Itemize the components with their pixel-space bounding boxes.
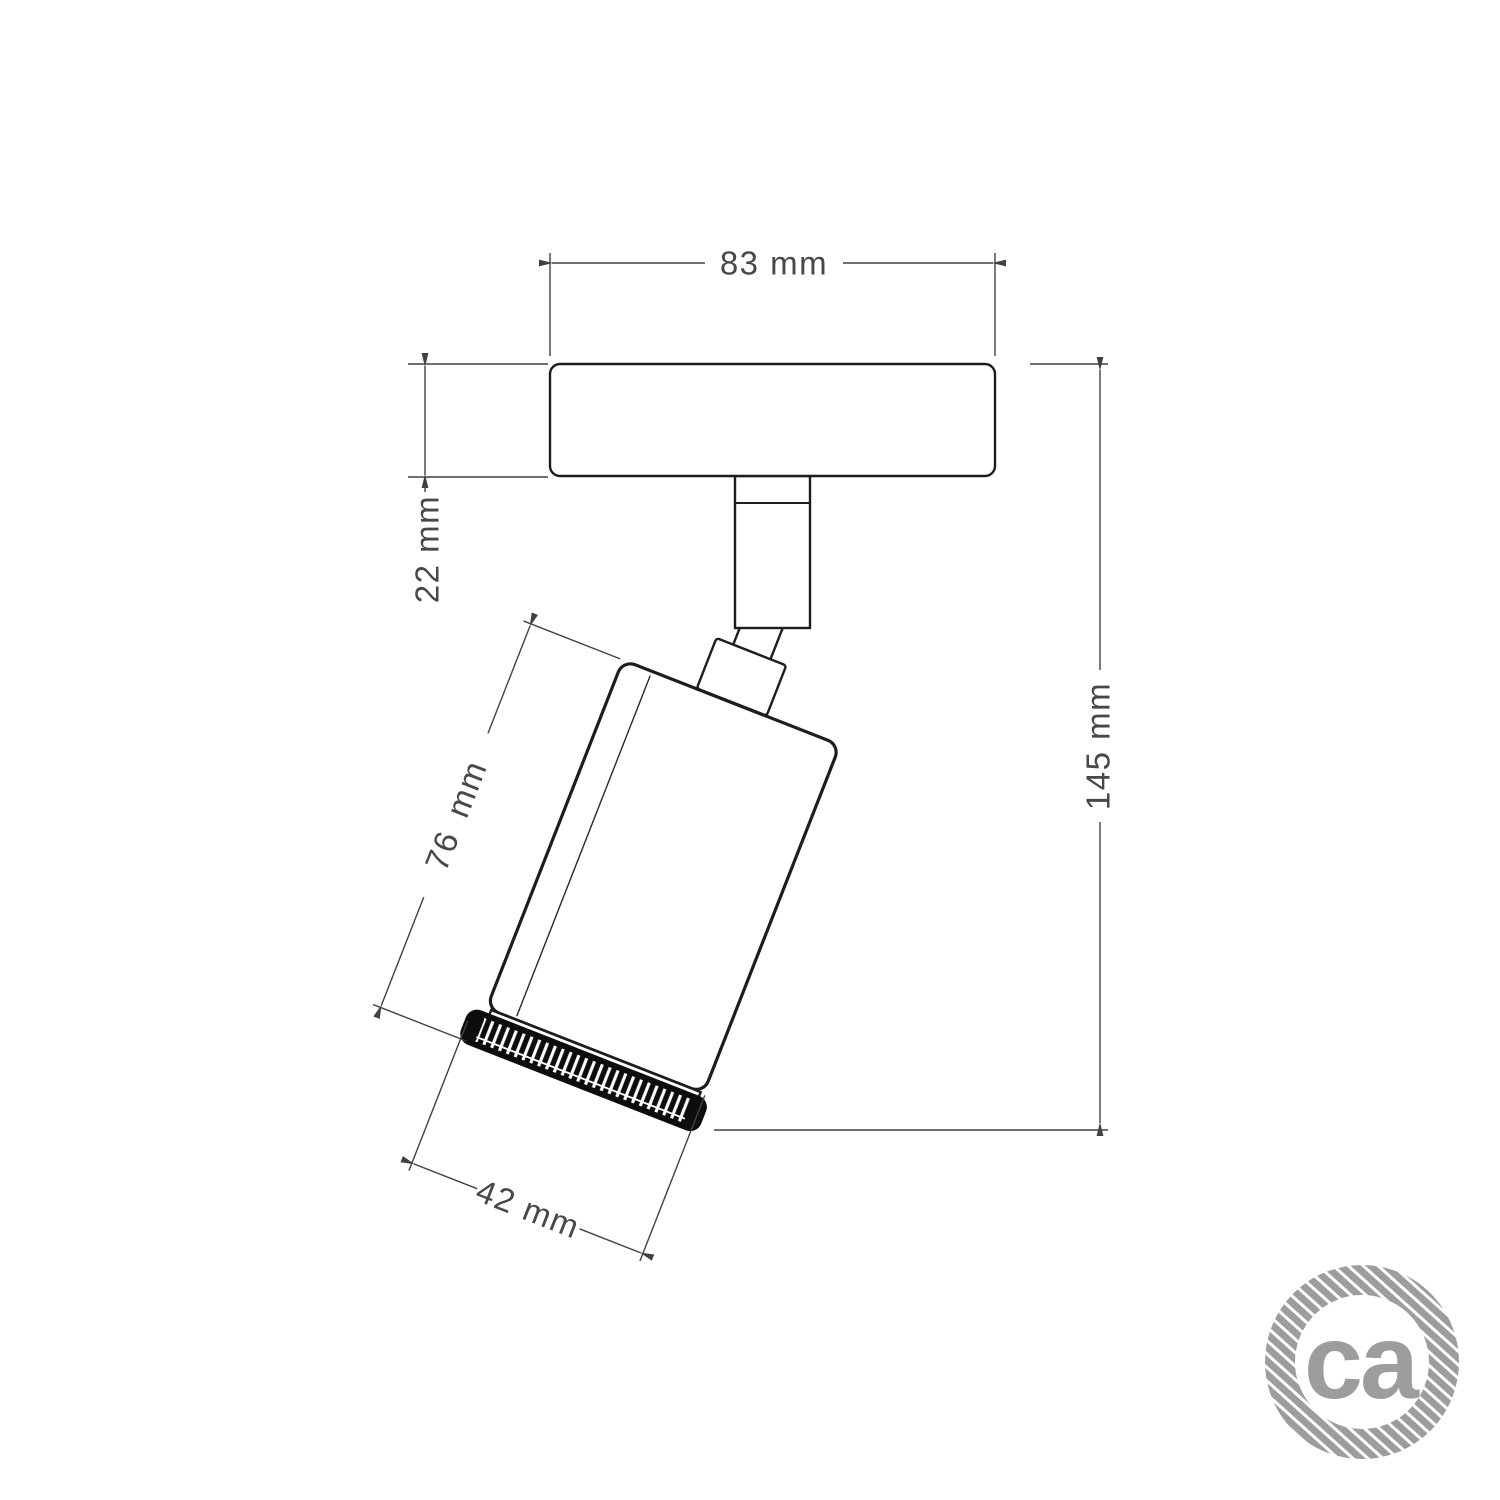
extension-lines-22 bbox=[408, 364, 548, 477]
dimension-label-83: 83 mm bbox=[720, 245, 828, 282]
ceiling-plate bbox=[550, 364, 995, 476]
dimension-line-76-lower bbox=[381, 897, 424, 1005]
dimension-label-76: 76 mm bbox=[418, 755, 495, 876]
lamp-assembly: 76 mm 42 mm bbox=[308, 566, 866, 1272]
logo-text: ca bbox=[1304, 1303, 1420, 1421]
dimension-line-42-left bbox=[414, 1164, 477, 1189]
brand-logo: ca bbox=[1280, 1280, 1444, 1444]
mounting-stem bbox=[735, 476, 810, 628]
dimension-label-145: 145 mm bbox=[1080, 682, 1117, 810]
mounting-stem-group bbox=[735, 476, 810, 628]
spotlight-dimension-drawing: 76 mm 42 mm 83 mm 22 mm 145 mm ca bbox=[0, 0, 1500, 1500]
dimension-plate-width: 83 mm bbox=[550, 245, 995, 357]
dimension-line-42-right bbox=[579, 1229, 640, 1253]
technical-drawing-page: 76 mm 42 mm 83 mm 22 mm 145 mm ca bbox=[0, 0, 1500, 1500]
dimension-label-22: 22 mm bbox=[409, 495, 446, 603]
dimension-plate-thickness: 22 mm bbox=[408, 364, 548, 603]
dimension-line-76-upper bbox=[488, 626, 530, 734]
dimension-label-42: 42 mm bbox=[471, 1172, 585, 1246]
